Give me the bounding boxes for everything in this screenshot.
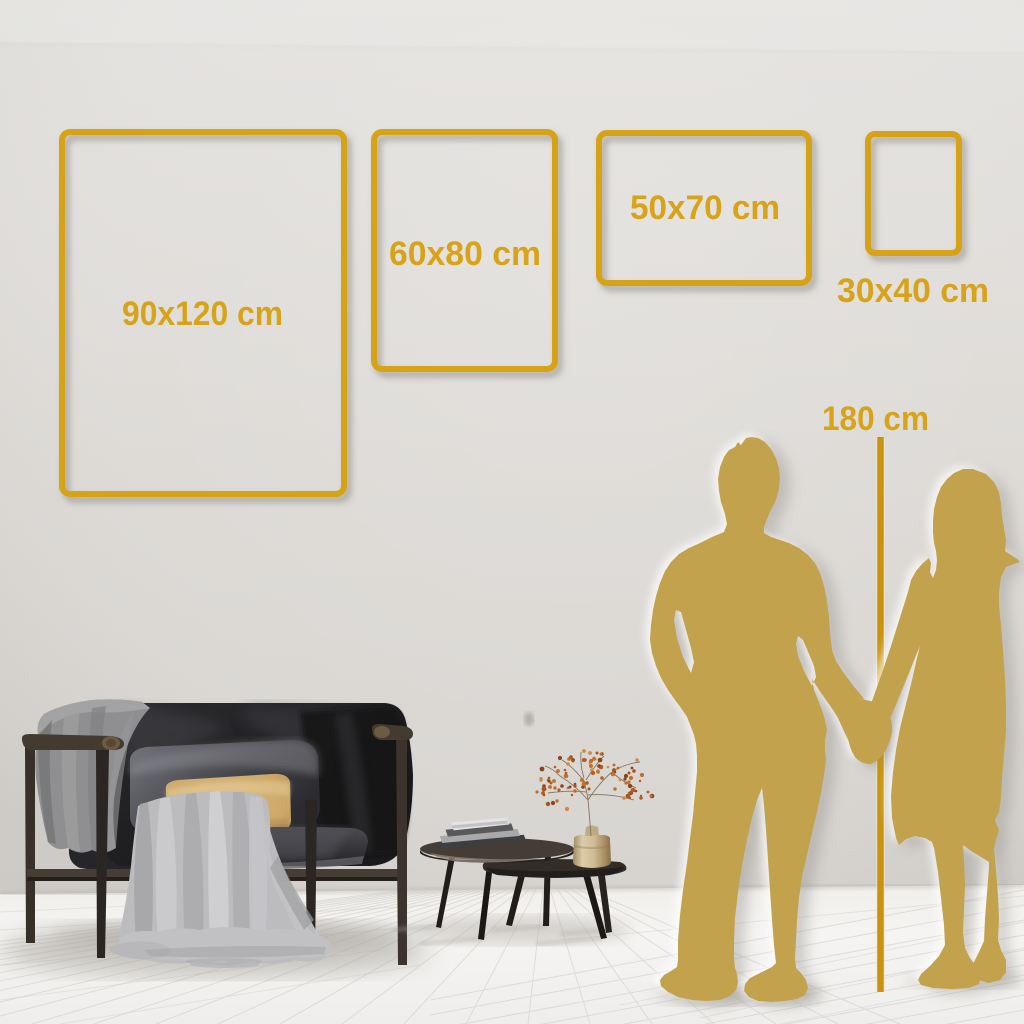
svg-text:30x40 cm: 30x40 cm <box>837 272 989 310</box>
svg-text:50x70 cm: 50x70 cm <box>630 189 780 227</box>
svg-text:180 cm: 180 cm <box>822 400 929 438</box>
svg-text:60x80 cm: 60x80 cm <box>389 235 541 273</box>
svg-text:90x120 cm: 90x120 cm <box>122 295 283 333</box>
